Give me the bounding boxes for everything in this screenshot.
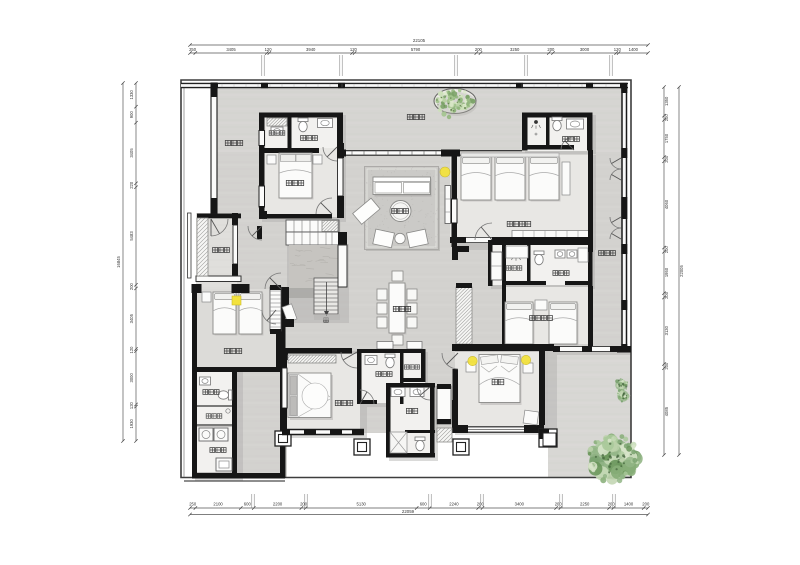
- svg-text:4060: 4060: [664, 199, 669, 209]
- svg-text:250: 250: [189, 502, 197, 507]
- svg-text:200: 200: [664, 114, 669, 122]
- svg-text:120: 120: [350, 47, 358, 52]
- svg-text:200: 200: [300, 502, 308, 507]
- svg-text:200: 200: [547, 47, 555, 52]
- svg-text:2250: 2250: [580, 502, 590, 507]
- svg-text:5790: 5790: [411, 47, 421, 52]
- svg-text:200: 200: [555, 502, 563, 507]
- svg-text:200: 200: [664, 155, 669, 163]
- svg-text:3130: 3130: [664, 325, 669, 335]
- svg-text:900: 900: [129, 111, 134, 119]
- svg-text:120: 120: [129, 401, 134, 409]
- svg-text:3940: 3940: [306, 47, 316, 52]
- svg-text:600: 600: [420, 502, 428, 507]
- svg-text:600: 600: [244, 502, 252, 507]
- svg-text:200: 200: [129, 282, 134, 290]
- svg-text:2100: 2100: [213, 502, 223, 507]
- svg-text:1330: 1330: [129, 89, 134, 99]
- svg-text:5130: 5130: [357, 502, 367, 507]
- svg-text:120: 120: [614, 47, 622, 52]
- svg-text:200: 200: [475, 47, 483, 52]
- svg-text:200: 200: [664, 246, 669, 254]
- svg-text:250: 250: [189, 47, 197, 52]
- svg-text:1400: 1400: [629, 47, 639, 52]
- svg-text:22105: 22105: [413, 38, 426, 43]
- svg-text:3405: 3405: [226, 47, 236, 52]
- svg-text:22059: 22059: [402, 509, 415, 514]
- svg-text:220: 220: [129, 181, 134, 189]
- svg-text:3400: 3400: [515, 502, 525, 507]
- svg-text:200: 200: [608, 502, 616, 507]
- svg-text:3250: 3250: [510, 47, 520, 52]
- svg-text:120: 120: [129, 346, 134, 354]
- svg-text:1930: 1930: [129, 418, 134, 428]
- svg-text:3405: 3405: [129, 148, 134, 158]
- svg-text:3000: 3000: [580, 47, 590, 52]
- svg-text:1350: 1350: [664, 96, 669, 106]
- svg-text:22005: 22005: [679, 265, 684, 277]
- svg-text:1750: 1750: [664, 133, 669, 143]
- svg-text:120: 120: [265, 47, 273, 52]
- svg-text:200: 200: [642, 502, 650, 507]
- svg-text:5483: 5483: [129, 231, 134, 241]
- svg-text:200: 200: [664, 291, 669, 299]
- svg-text:2240: 2240: [449, 502, 459, 507]
- svg-text:3000: 3000: [129, 372, 134, 382]
- svg-text:1950: 1950: [664, 267, 669, 277]
- svg-text:3405: 3405: [129, 313, 134, 323]
- svg-text:1400: 1400: [624, 502, 634, 507]
- svg-text:200: 200: [664, 362, 669, 370]
- svg-text:2200: 2200: [273, 502, 283, 507]
- svg-text:4085: 4085: [664, 406, 669, 416]
- svg-text:16845: 16845: [116, 256, 121, 268]
